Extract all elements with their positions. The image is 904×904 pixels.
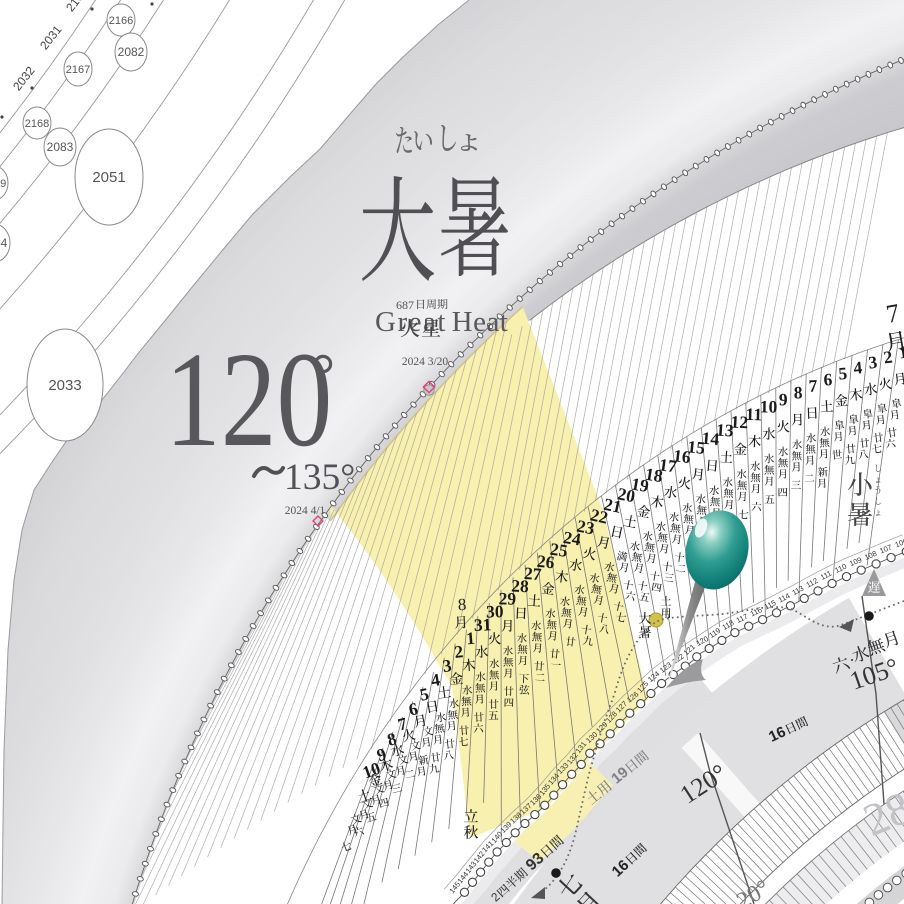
svg-text:2168: 2168 xyxy=(25,118,49,130)
svg-text:8: 8 xyxy=(457,595,466,614)
svg-text:2169: 2169 xyxy=(0,178,6,190)
svg-text:2082: 2082 xyxy=(118,45,145,59)
svg-text:7: 7 xyxy=(808,376,818,396)
svg-text:2084: 2084 xyxy=(0,236,8,250)
svg-text:1: 1 xyxy=(465,628,475,649)
svg-text:8: 8 xyxy=(793,382,802,402)
svg-text:2024 4/1: 2024 4/1 xyxy=(285,505,326,517)
svg-text:10: 10 xyxy=(760,396,778,416)
svg-text:6: 6 xyxy=(823,369,833,389)
svg-text:2166: 2166 xyxy=(109,15,133,27)
svg-text:Heat: Heat xyxy=(452,306,509,338)
svg-text:2083: 2083 xyxy=(47,140,74,154)
svg-text:2024 3/20: 2024 3/20 xyxy=(402,356,449,368)
svg-text:31: 31 xyxy=(473,614,491,635)
svg-text:9: 9 xyxy=(779,389,788,409)
svg-text:2033: 2033 xyxy=(48,377,81,394)
svg-text:687: 687 xyxy=(396,298,414,312)
svg-text:135°: 135° xyxy=(284,457,355,498)
svg-text:2051: 2051 xyxy=(92,169,125,186)
svg-text:5: 5 xyxy=(838,363,849,384)
svg-text:2167: 2167 xyxy=(66,64,90,76)
svg-text:120: 120 xyxy=(165,324,332,475)
